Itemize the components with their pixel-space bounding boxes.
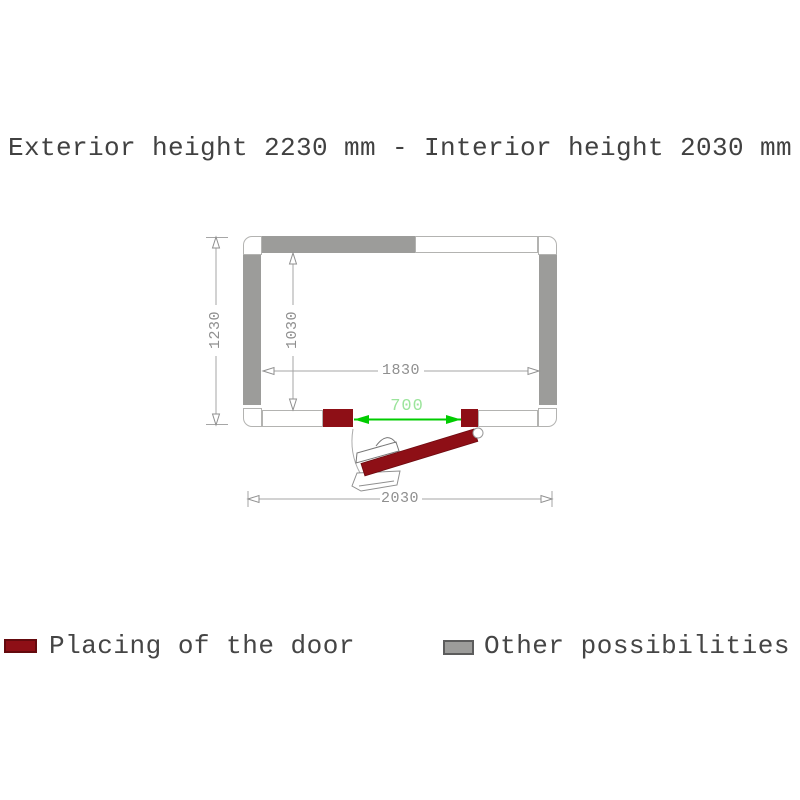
legend-door-swatch [4,639,37,653]
arrowhead-down [290,399,297,410]
arrowhead-down [213,414,220,425]
legend-other-label: Other possibilities [484,631,790,661]
arrowhead-right [528,368,539,375]
legend-door-label: Placing of the door [49,631,355,661]
dim-door-width-label: 700 [367,398,447,416]
arrowhead-up [290,253,297,264]
door-hinge [473,428,483,438]
floor-plan-page: Exterior height 2230 mm - Interior heigh… [0,0,800,800]
dim-interior-width-label: 1830 [361,362,441,380]
arrowhead-right [541,496,552,503]
arrowhead-left [263,368,274,375]
dim-interior-depth-label: 1030 [283,270,303,390]
door-width-arrowhead-left [354,415,369,424]
dim-exterior-depth-label: 1230 [206,270,226,390]
door-swing-arc [352,429,360,473]
dim-exterior-width-label: 2030 [360,490,440,508]
arrowhead-up [213,237,220,248]
arrowhead-left [248,496,259,503]
door-width-arrowhead-right [446,415,461,424]
legend-other-swatch [443,640,474,655]
